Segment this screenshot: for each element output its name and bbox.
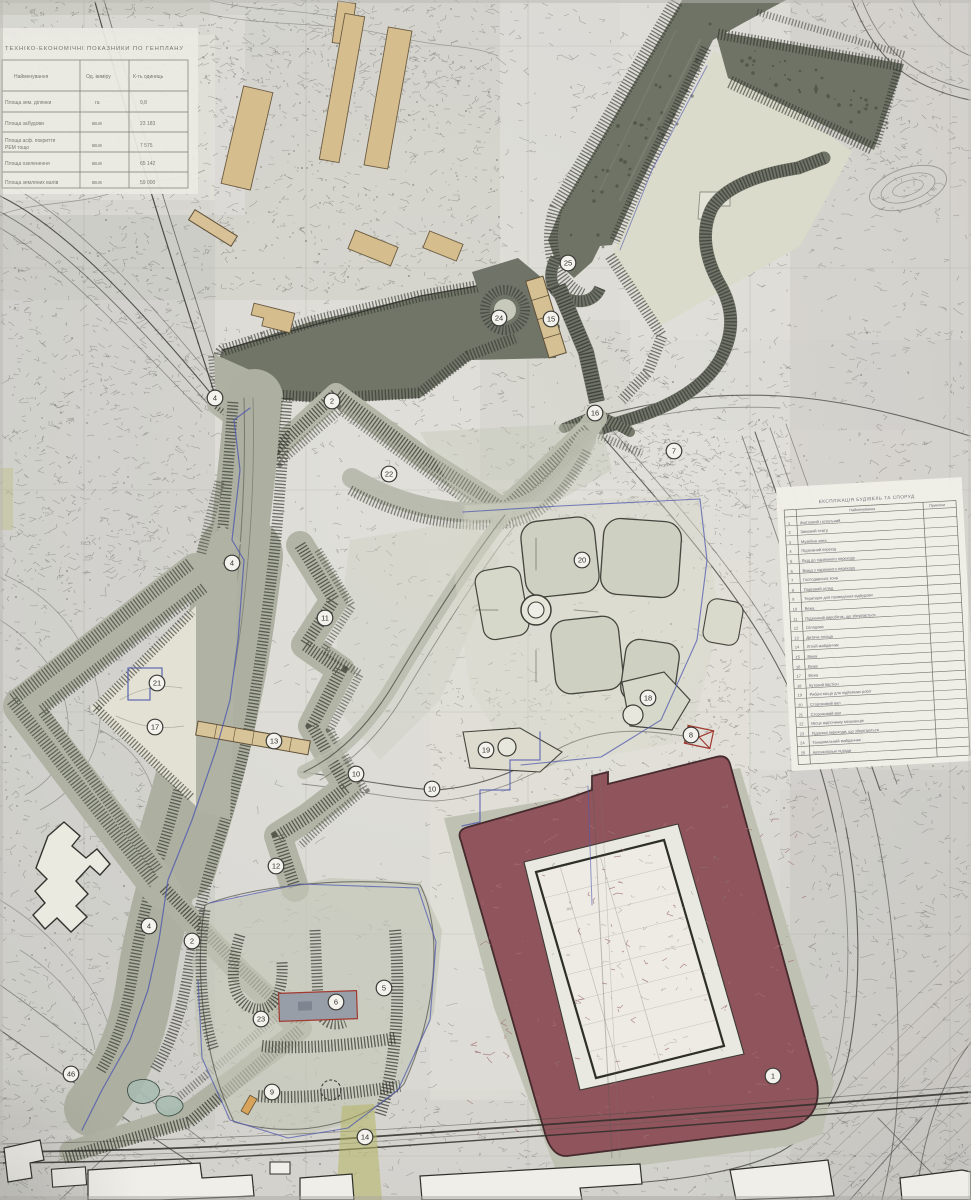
- svg-text:10: 10: [352, 770, 360, 779]
- svg-text:9,8: 9,8: [140, 100, 147, 106]
- svg-text:кв.м: кв.м: [92, 143, 102, 149]
- svg-text:21: 21: [153, 679, 161, 688]
- svg-text:Площа земляних валів: Площа земляних валів: [5, 180, 59, 186]
- svg-text:14: 14: [361, 1133, 369, 1142]
- svg-text:К-ть одиниць: К-ть одиниць: [133, 74, 164, 80]
- svg-text:11: 11: [321, 614, 329, 623]
- svg-text:Вежа: Вежа: [808, 672, 819, 678]
- svg-text:РЕМ тощо: РЕМ тощо: [5, 145, 29, 151]
- svg-text:Найменування: Найменування: [14, 73, 49, 80]
- svg-text:Площа асф. покриття: Площа асф. покриття: [5, 138, 56, 144]
- svg-text:Площа озеленення: Площа озеленення: [5, 161, 50, 167]
- svg-text:16: 16: [591, 409, 599, 418]
- svg-text:Площа забудови: Площа забудови: [5, 121, 44, 127]
- svg-text:4: 4: [213, 394, 217, 403]
- svg-text:24: 24: [495, 314, 503, 323]
- svg-text:Площа зем. ділянки: Площа зем. ділянки: [5, 100, 51, 106]
- svg-text:10: 10: [428, 785, 436, 794]
- svg-text:17: 17: [151, 723, 159, 732]
- svg-text:Вежа: Вежа: [808, 663, 819, 669]
- svg-text:7 575: 7 575: [140, 143, 153, 149]
- svg-text:1: 1: [771, 1072, 775, 1081]
- svg-text:кв.м: кв.м: [92, 121, 102, 127]
- svg-text:5: 5: [382, 984, 386, 993]
- svg-text:2: 2: [330, 397, 334, 406]
- svg-text:Од. виміру: Од. виміру: [86, 74, 111, 80]
- svg-text:22: 22: [385, 470, 393, 479]
- svg-text:Оглядова: Оглядова: [806, 624, 825, 630]
- svg-text:59 000: 59 000: [140, 180, 156, 186]
- svg-text:15: 15: [547, 315, 555, 324]
- svg-text:кв.м: кв.м: [92, 180, 102, 186]
- svg-text:кв.м: кв.м: [92, 161, 102, 167]
- svg-text:19: 19: [482, 746, 490, 755]
- svg-text:8: 8: [689, 731, 693, 740]
- svg-text:13: 13: [270, 737, 278, 746]
- svg-text:Вежа: Вежа: [807, 653, 818, 659]
- svg-text:23 183: 23 183: [140, 121, 156, 127]
- svg-text:Вежа: Вежа: [805, 605, 816, 611]
- svg-text:4: 4: [230, 559, 234, 568]
- svg-text:га: га: [95, 100, 100, 106]
- svg-text:20: 20: [578, 556, 586, 565]
- svg-text:7: 7: [672, 447, 676, 456]
- svg-text:25: 25: [564, 259, 572, 268]
- svg-text:ТЕХНІКО-ЕКОНОМІЧНІ ПОКАЗНИКИ: ТЕХНІКО-ЕКОНОМІЧНІ ПОКАЗНИКИ ПО ГЕНПЛАНУ: [5, 46, 184, 52]
- svg-text:18: 18: [644, 694, 652, 703]
- svg-text:65 142: 65 142: [140, 161, 156, 167]
